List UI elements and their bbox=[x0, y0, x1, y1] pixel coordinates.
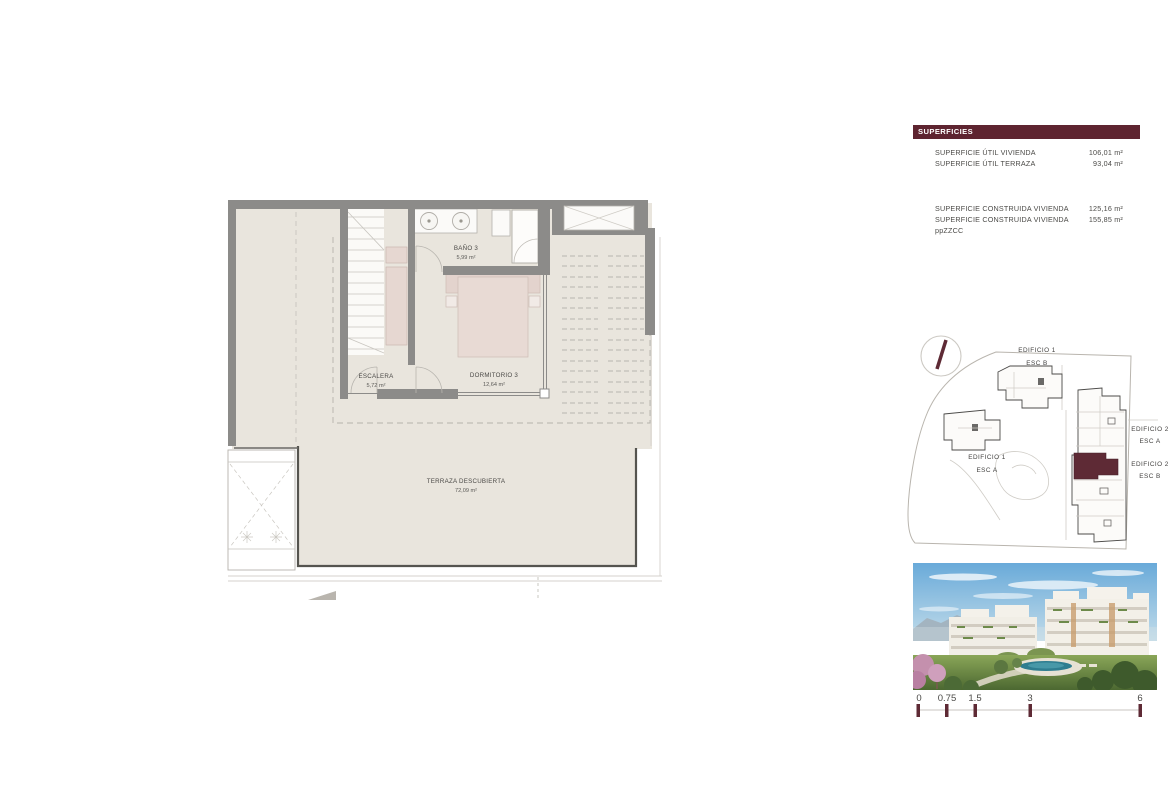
label-edificio2-lower: EDIFICIO 2 bbox=[1131, 461, 1169, 468]
scale-tick-6: 6 bbox=[1137, 693, 1142, 704]
area-row: SUPERFICIE ÚTIL VIVIENDA 106,01 m² bbox=[935, 147, 1123, 158]
area-value: 106,01 m² bbox=[1089, 147, 1123, 158]
label-escb-right: ESC B bbox=[1139, 473, 1160, 480]
shower-icon bbox=[512, 210, 538, 263]
plan-floor-upper bbox=[232, 203, 652, 449]
room-label-terraza: TERRAZA DESCUBIERTA bbox=[427, 478, 506, 485]
wardrobe bbox=[386, 247, 407, 345]
label-edificio1-left: EDIFICIO 1 bbox=[968, 454, 1006, 461]
render-illustration bbox=[913, 563, 1157, 690]
toilet-icon bbox=[492, 210, 510, 236]
area-value: 155,85 m² bbox=[1089, 214, 1123, 236]
scale-tick-0: 0 bbox=[916, 693, 921, 704]
label-escb-top: ESC B bbox=[1026, 360, 1047, 367]
page: BAÑO 3 5,99 m² ESCALERA 5,72 m² DORMITOR… bbox=[0, 0, 1170, 785]
scale-tick-15: 1.5 bbox=[968, 693, 981, 704]
scale-tick-075: 0.75 bbox=[938, 693, 957, 704]
room-label-bano: BAÑO 3 bbox=[454, 245, 479, 252]
label-esca-right: ESC A bbox=[1139, 438, 1160, 445]
area-label: SUPERFICIE CONSTRUIDA VIVIENDA ppZZCC bbox=[935, 214, 1089, 236]
terrace-floor bbox=[298, 444, 636, 566]
room-area-escalera: 5,72 m² bbox=[367, 383, 386, 389]
superficies-panel: SUPERFICIES SUPERFICIE ÚTIL VIVIENDA 106… bbox=[913, 125, 1140, 236]
superficies-title: SUPERFICIES bbox=[918, 127, 973, 136]
site-plan: EDIFICIO 1 ESC B EDIFICIO 1 ESC A EDIFIC… bbox=[908, 336, 1169, 549]
area-row: SUPERFICIE ÚTIL TERRAZA 93,04 m² bbox=[935, 158, 1123, 169]
room-area-dormitorio: 12,64 m² bbox=[483, 382, 505, 388]
neighbour-terrace-hatch bbox=[228, 450, 295, 570]
area-label: SUPERFICIE ÚTIL TERRAZA bbox=[935, 158, 1035, 169]
room-area-terraza: 72,09 m² bbox=[455, 488, 477, 494]
scale-tick-3: 3 bbox=[1027, 693, 1032, 704]
building-render-photo bbox=[913, 563, 1157, 690]
ramp-arrow bbox=[308, 591, 336, 600]
site-building-1 bbox=[944, 366, 1062, 450]
area-label: SUPERFICIE ÚTIL VIVIENDA bbox=[935, 147, 1036, 158]
right-building bbox=[1045, 587, 1149, 655]
area-label: SUPERFICIE CONSTRUIDA VIVIENDA bbox=[935, 203, 1069, 214]
superficies-header: SUPERFICIES bbox=[913, 125, 1140, 139]
room-area-bano: 5,99 m² bbox=[457, 255, 476, 261]
bed bbox=[446, 273, 540, 357]
area-value: 93,04 m² bbox=[1093, 158, 1123, 169]
staircase bbox=[348, 207, 384, 355]
site-labels: EDIFICIO 1 ESC B EDIFICIO 1 ESC A EDIFIC… bbox=[968, 347, 1169, 480]
floor-plan-drawing: BAÑO 3 5,99 m² ESCALERA 5,72 m² DORMITOR… bbox=[228, 200, 662, 601]
area-row: SUPERFICIE CONSTRUIDA VIVIENDA 125,16 m² bbox=[935, 203, 1123, 214]
skylight bbox=[552, 200, 648, 235]
label-esca-left: ESC A bbox=[976, 467, 997, 474]
area-value: 125,16 m² bbox=[1089, 203, 1123, 214]
site-building-2 bbox=[1072, 388, 1126, 542]
scale-bar: 0 0.75 1.5 3 6 bbox=[916, 693, 1142, 717]
room-label-escalera: ESCALERA bbox=[358, 373, 394, 380]
room-label-dormitorio: DORMITORIO 3 bbox=[470, 372, 519, 379]
label-edificio2-upper: EDIFICIO 2 bbox=[1131, 426, 1169, 433]
label-edificio1-top: EDIFICIO 1 bbox=[1018, 347, 1056, 354]
north-arrow-icon bbox=[921, 336, 961, 376]
area-row: SUPERFICIE CONSTRUIDA VIVIENDA ppZZCC 15… bbox=[935, 214, 1123, 236]
